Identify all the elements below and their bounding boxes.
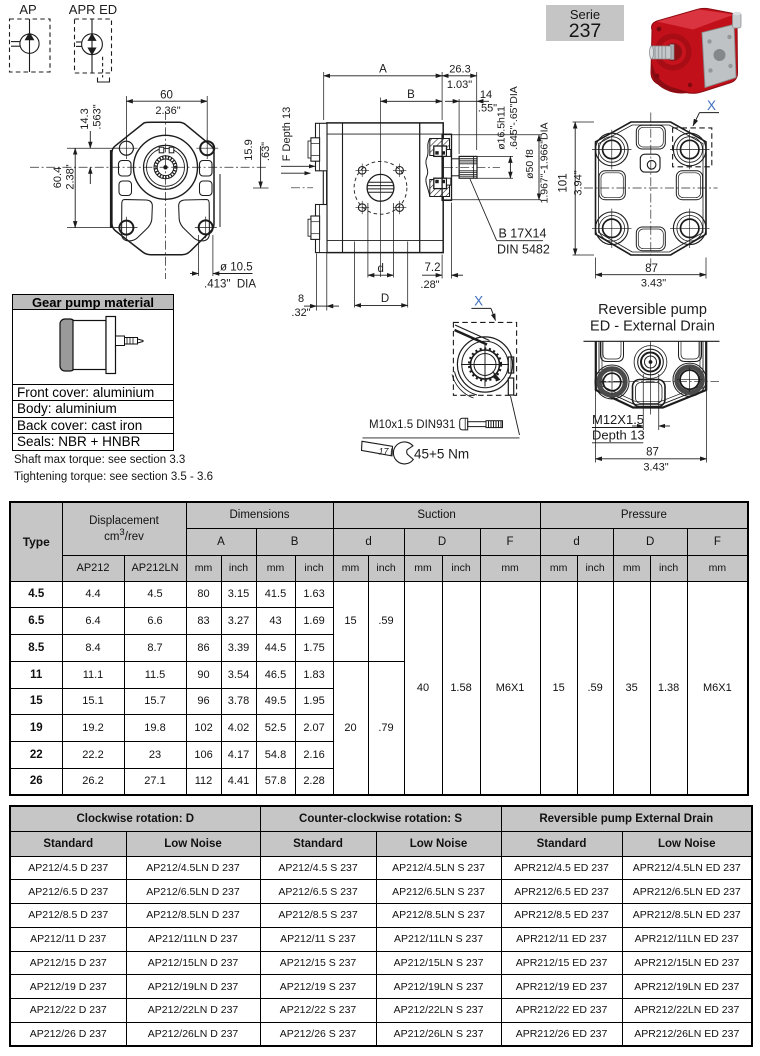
svg-text:60: 60 bbox=[160, 90, 173, 102]
svg-text:.63": .63" bbox=[260, 142, 272, 161]
svg-text:X: X bbox=[707, 98, 716, 113]
svg-text:14.3: 14.3 bbox=[79, 108, 91, 129]
svg-text:3.43": 3.43" bbox=[641, 278, 666, 290]
svg-text:45+5 Nm: 45+5 Nm bbox=[414, 447, 469, 462]
svg-text:87: 87 bbox=[645, 263, 658, 275]
svg-text:ED - External Drain: ED - External Drain bbox=[590, 319, 715, 335]
svg-text:26.3: 26.3 bbox=[449, 64, 470, 76]
svg-text:d: d bbox=[377, 263, 383, 275]
svg-text:60.4: 60.4 bbox=[52, 167, 64, 188]
svg-text:3.94": 3.94" bbox=[573, 170, 585, 195]
svg-text:17: 17 bbox=[379, 447, 390, 457]
svg-text:101: 101 bbox=[558, 173, 570, 192]
svg-text:A: A bbox=[379, 64, 387, 76]
svg-text:M10x1.5 DIN931: M10x1.5 DIN931 bbox=[369, 419, 455, 431]
svg-text:DIN 5482: DIN 5482 bbox=[497, 243, 550, 257]
svg-text:2.38": 2.38" bbox=[65, 164, 77, 189]
svg-text:15.9: 15.9 bbox=[243, 139, 255, 160]
svg-text:.563": .563" bbox=[92, 104, 104, 129]
svg-text:Reversible pump: Reversible pump bbox=[598, 302, 707, 318]
svg-text:.28": .28" bbox=[420, 279, 439, 291]
svg-text:.55": .55" bbox=[478, 103, 497, 115]
svg-text:3.43": 3.43" bbox=[643, 462, 668, 474]
svg-text:1.967"-1.966"DIA: 1.967"-1.966"DIA bbox=[539, 122, 551, 203]
svg-text:ø16.5h11: ø16.5h11 bbox=[496, 106, 508, 150]
svg-text:AP: AP bbox=[19, 2, 36, 17]
svg-text:14: 14 bbox=[480, 89, 492, 101]
svg-text:B: B bbox=[407, 89, 415, 101]
svg-text:APR ED: APR ED bbox=[69, 2, 117, 17]
svg-text:87: 87 bbox=[646, 447, 659, 459]
svg-text:M12X1.5: M12X1.5 bbox=[592, 412, 644, 427]
svg-text:B 17X14: B 17X14 bbox=[499, 227, 547, 241]
svg-text:ø50 f8: ø50 f8 bbox=[524, 149, 536, 179]
svg-text:X: X bbox=[474, 294, 483, 309]
svg-text:D: D bbox=[381, 293, 389, 305]
svg-text:.645"-.65"DIA: .645"-.65"DIA bbox=[508, 86, 520, 150]
svg-text:ø 10.5: ø 10.5 bbox=[220, 262, 253, 274]
svg-text:.32": .32" bbox=[291, 307, 310, 319]
svg-text:.413" DIA: .413" DIA bbox=[204, 279, 256, 291]
svg-text:7.2: 7.2 bbox=[425, 262, 441, 274]
svg-text:F Depth 13: F Depth 13 bbox=[281, 107, 293, 161]
svg-text:1.03": 1.03" bbox=[447, 79, 472, 91]
svg-text:Depth 13: Depth 13 bbox=[592, 428, 645, 443]
svg-text:8: 8 bbox=[298, 293, 304, 305]
svg-text:2.36": 2.36" bbox=[155, 105, 180, 117]
